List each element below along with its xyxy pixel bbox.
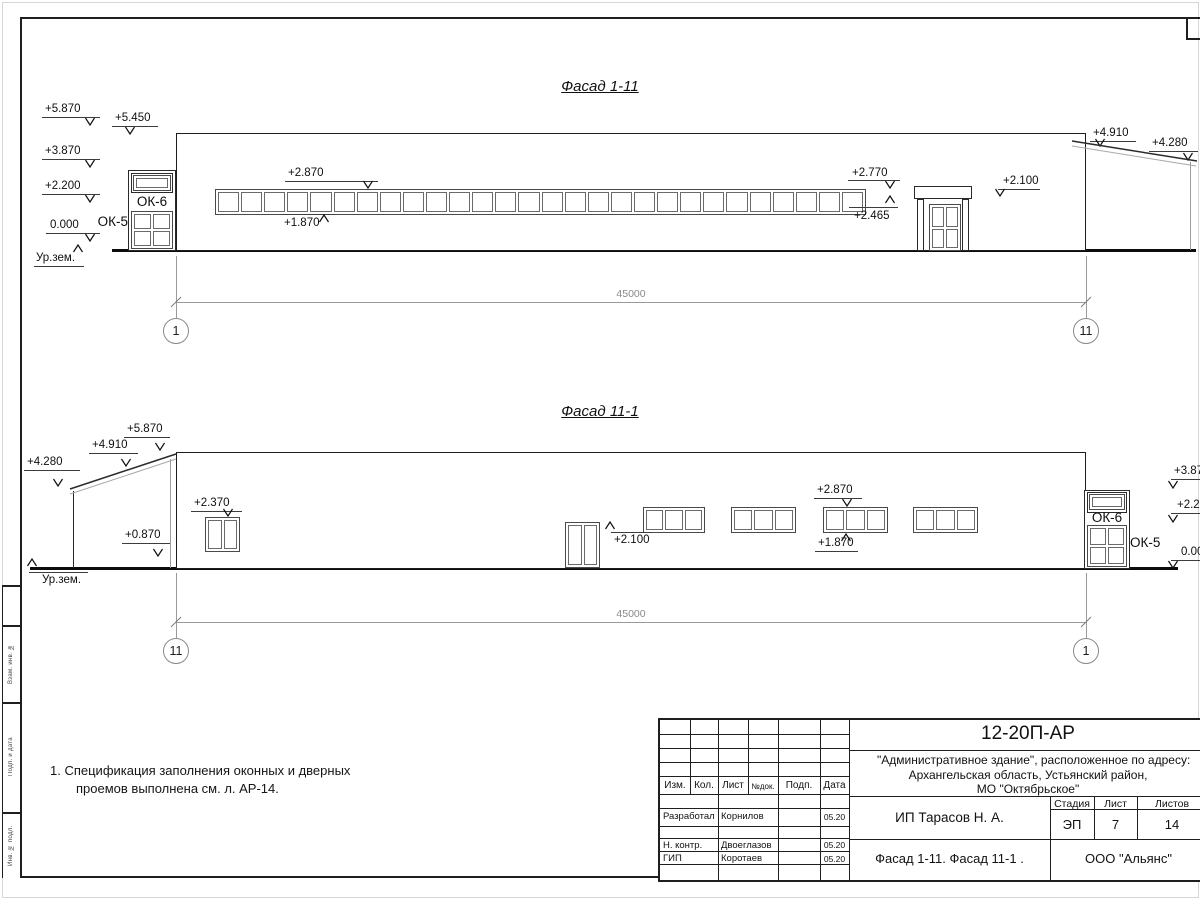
elevation-mark: +5.870	[45, 103, 81, 115]
window	[823, 507, 888, 533]
elevation-mark: +2.200	[1177, 499, 1200, 511]
elevation-mark-line	[815, 551, 858, 552]
extension-line	[176, 573, 177, 638]
col-data: Дата	[820, 780, 849, 791]
elevation-mark: +2.870	[288, 167, 324, 179]
row-date: 05.20	[820, 840, 849, 850]
window-pane	[380, 192, 401, 212]
window	[913, 507, 978, 533]
window	[929, 204, 961, 251]
elevation-mark: +2.870	[817, 484, 853, 496]
window-pane	[932, 207, 944, 227]
titleblock-grid-line	[778, 720, 779, 880]
window-pane	[734, 510, 752, 530]
window-pane	[136, 178, 168, 188]
window-pane	[449, 192, 470, 212]
window-pane	[472, 192, 493, 212]
elevation-mark: +2.100	[1003, 175, 1039, 187]
window-pane	[310, 192, 331, 212]
title-block: 12-20П-АР "Административное здание", рас…	[658, 718, 1200, 882]
window-pane	[1090, 547, 1106, 564]
extension-line	[176, 256, 177, 318]
elevation-mark: +0.870	[125, 529, 161, 541]
panel-joint	[1190, 162, 1191, 250]
col-ndoc: №док.	[748, 782, 778, 791]
window-pane	[946, 207, 958, 227]
dimension-line	[176, 622, 1086, 623]
elevation-mark: +2.370	[194, 497, 230, 509]
window	[205, 517, 240, 552]
dimension-value: 45000	[176, 608, 1086, 620]
window-pane	[134, 214, 151, 229]
window-pane	[1092, 497, 1122, 507]
elevation-mark-line	[124, 437, 170, 438]
window-pane	[646, 510, 663, 530]
note-line-2: проемов выполнена см. л. АР-14.	[50, 780, 350, 798]
extension-line	[1086, 256, 1087, 318]
titleblock-grid-line	[1137, 796, 1138, 839]
titleblock-grid-line	[849, 839, 1200, 840]
elevation-mark-line	[42, 159, 100, 160]
elevation-mark-line	[1149, 151, 1198, 152]
window-pane	[826, 510, 844, 530]
elevation-mark: +4.910	[1093, 127, 1129, 139]
elevation-mark: +5.870	[127, 423, 163, 435]
elevation-mark-line	[34, 266, 84, 267]
window-pane	[867, 510, 885, 530]
window-pane	[726, 192, 747, 212]
window-pane	[584, 525, 598, 565]
opening-label: ОК-5	[1130, 535, 1176, 550]
window-pane	[773, 192, 794, 212]
opening-label: ОК-5	[92, 214, 128, 229]
project-address-2: Архангельская область, Устьянский район,	[849, 768, 1200, 782]
row-role: Н. контр.	[663, 840, 702, 851]
titleblock-grid-line	[690, 720, 691, 794]
window-pane	[426, 192, 447, 212]
window-pane	[518, 192, 539, 212]
window-pane	[703, 192, 724, 212]
elevation-mark: +3.870	[45, 145, 81, 157]
titleblock-grid-line	[849, 750, 1200, 751]
elevation-mark: +3.870	[1174, 465, 1200, 477]
drawing-sheet: { "note": { "line1": "1. Спецификация за…	[0, 0, 1200, 900]
elevation-mark-line	[89, 453, 138, 454]
elevation-mark: +2.100	[614, 534, 650, 546]
window-pane	[1090, 528, 1106, 545]
titleblock-grid-line	[1050, 809, 1200, 810]
window-pane	[665, 510, 682, 530]
elevation-mark: +4.910	[92, 439, 128, 451]
elevation-mark-line	[814, 498, 862, 499]
row-name: Двоеглазов	[721, 840, 772, 851]
elevation-mark: 0.000	[50, 219, 79, 231]
window-pane	[1108, 547, 1124, 564]
elevation-mark-line	[24, 470, 80, 471]
elevation-mark-line	[1171, 479, 1200, 480]
row-role: Разработал	[663, 811, 715, 822]
window	[131, 211, 173, 249]
elevation-mark: +1.870	[818, 537, 854, 549]
elevation-mark-line	[1171, 560, 1200, 561]
elevation-mark-line	[998, 189, 1040, 190]
window-pane	[568, 525, 582, 565]
window-pane	[680, 192, 701, 212]
note-line-1: 1. Спецификация заполнения оконных и две…	[50, 762, 350, 780]
window-pane	[796, 192, 817, 212]
elevation-mark-line	[611, 532, 652, 533]
window	[565, 522, 600, 568]
elevation-mark-line	[285, 181, 378, 182]
elevation-mark: +2.465	[854, 210, 890, 222]
titleblock-grid-line	[849, 720, 850, 880]
window-pane	[153, 231, 170, 246]
side-stamp: Взам. инв. № Подп. и дата Инв. № подл.	[2, 585, 20, 878]
window-pane	[224, 520, 238, 549]
elevation-mark: +1.870	[284, 217, 320, 229]
window-pane	[754, 510, 772, 530]
elevation-mark-line	[1171, 513, 1200, 514]
window-pane	[750, 192, 771, 212]
elevation-mark-line	[849, 207, 898, 208]
facade-element	[962, 199, 969, 251]
row-date: 05.20	[820, 854, 849, 864]
panel-joint	[73, 491, 74, 568]
dimension-value: 45000	[176, 288, 1086, 300]
facade-title: Фасад 1-11	[480, 78, 720, 95]
window-pane	[357, 192, 378, 212]
window-pane	[846, 510, 864, 530]
window-pane	[287, 192, 308, 212]
facade-element	[914, 186, 972, 199]
stage-value: ЭП	[1050, 817, 1094, 832]
elevation-mark-line	[848, 180, 900, 181]
window-pane	[334, 192, 355, 212]
col-podp: Подп.	[778, 780, 820, 791]
elevation-mark: Ур.зем.	[42, 574, 81, 586]
row-name: Корнилов	[721, 811, 764, 822]
sheet-title: Фасад 1-11. Фасад 11-1 .	[849, 851, 1050, 866]
window-pane	[819, 192, 840, 212]
window-pane	[936, 510, 954, 530]
stamp-label: Взам. инв. №	[3, 627, 19, 700]
window	[215, 189, 866, 215]
window-pane	[264, 192, 285, 212]
axis-circle: 11	[1073, 318, 1099, 344]
opening-label: ОК-6	[131, 194, 173, 209]
titleblock-grid-line	[1094, 796, 1095, 839]
window-pane	[588, 192, 609, 212]
project-address-1: "Административное здание", расположенное…	[877, 753, 1190, 767]
elevation-mark-line	[1090, 141, 1136, 142]
window	[1089, 494, 1125, 510]
window-pane	[916, 510, 934, 530]
window	[731, 507, 796, 533]
row-date: 05.20	[820, 812, 849, 822]
window-pane	[946, 229, 958, 249]
axis-circle: 1	[1073, 638, 1099, 664]
titleblock-grid-line	[748, 720, 749, 794]
window-pane	[842, 192, 863, 212]
window	[133, 175, 171, 191]
opening-label: ОК-6	[1087, 510, 1127, 525]
sheet-value: 7	[1094, 817, 1137, 832]
row-role: ГИП	[663, 853, 682, 864]
window-pane	[657, 192, 678, 212]
client: ИП Тарасов Н. А.	[849, 810, 1050, 825]
elevation-mark-line	[46, 233, 100, 234]
elevation-mark-line	[29, 572, 88, 573]
titleblock-grid-line	[1050, 796, 1051, 880]
window-pane	[775, 510, 793, 530]
window-pane	[565, 192, 586, 212]
extension-line	[1086, 573, 1087, 638]
elevation-mark-line	[112, 126, 158, 127]
project-address-3: МО "Октябрьское"	[849, 782, 1200, 796]
facade-element	[917, 199, 924, 251]
window-pane	[218, 192, 239, 212]
window	[1087, 525, 1127, 567]
company: ООО "Альянс"	[1050, 851, 1200, 866]
col-izm: Изм.	[660, 780, 690, 791]
facade-title: Фасад 11-1	[480, 403, 720, 420]
window-pane	[208, 520, 222, 549]
window-pane	[634, 192, 655, 212]
window-pane	[495, 192, 516, 212]
window-pane	[403, 192, 424, 212]
window-pane	[542, 192, 563, 212]
window-pane	[153, 214, 170, 229]
elevation-mark: Ур.зем.	[36, 252, 75, 264]
note: 1. Спецификация заполнения оконных и две…	[50, 762, 350, 798]
elevation-mark: +4.280	[27, 456, 63, 468]
window-pane	[932, 229, 944, 249]
window-pane	[685, 510, 702, 530]
axis-circle: 11	[163, 638, 189, 664]
elevation-mark: 0.000	[1181, 546, 1200, 558]
titleblock-grid-line	[820, 720, 821, 880]
elevation-mark: +5.450	[115, 112, 151, 124]
col-list: Лист	[718, 780, 748, 791]
elevation-mark-line	[122, 543, 170, 544]
titleblock-grid-line	[849, 796, 1200, 797]
window-pane	[134, 231, 151, 246]
row-name: Коротаев	[721, 853, 762, 864]
elevation-mark: +2.200	[45, 180, 81, 192]
elevation-mark-line	[42, 117, 100, 118]
window	[643, 507, 705, 533]
col-kol: Кол.	[690, 780, 718, 791]
elevation-mark-line	[281, 214, 334, 215]
panel-joint	[170, 459, 171, 568]
titleblock-grid-line	[718, 720, 719, 880]
window-pane	[1108, 528, 1124, 545]
elevation-mark-line	[191, 511, 242, 512]
stamp-label: Подп. и дата	[3, 704, 19, 810]
dimension-line	[176, 302, 1086, 303]
window-pane	[957, 510, 975, 530]
project-code: 12-20П-АР	[849, 723, 1200, 745]
window-pane	[611, 192, 632, 212]
axis-circle: 1	[163, 318, 189, 344]
elevation-mark-line	[42, 194, 100, 195]
sheets-value: 14	[1137, 817, 1200, 832]
stamp-label: Инв. № подл.	[3, 814, 19, 878]
window-pane	[241, 192, 262, 212]
elevation-mark: +2.770	[852, 167, 888, 179]
elevation-mark: +4.280	[1152, 137, 1188, 149]
